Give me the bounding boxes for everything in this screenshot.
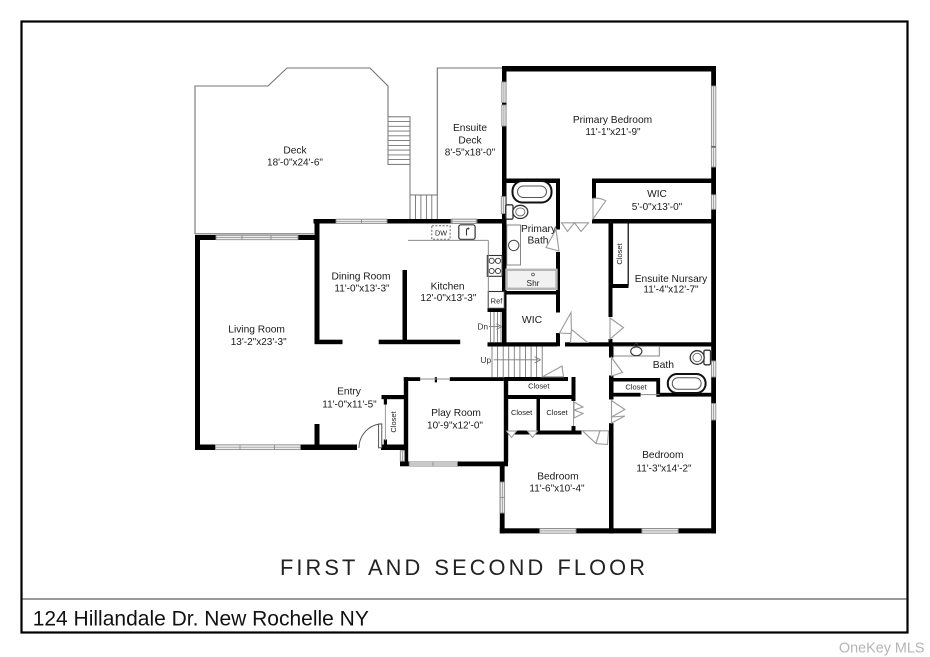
svg-text:124 Hillandale Dr. New Rochell: 124 Hillandale Dr. New Rochelle NY [33, 608, 369, 631]
svg-text:Dn: Dn [478, 323, 489, 332]
svg-text:Closet: Closet [528, 382, 550, 391]
svg-text:11'-4"x12'-7": 11'-4"x12'-7" [643, 285, 699, 296]
svg-text:Shr: Shr [527, 278, 540, 288]
svg-text:Up: Up [481, 356, 492, 365]
svg-text:Entry: Entry [337, 387, 362, 398]
svg-text:Deck: Deck [283, 146, 307, 157]
svg-text:Bath: Bath [528, 236, 549, 247]
svg-text:11'-1"x21'-9": 11'-1"x21'-9" [585, 127, 641, 138]
svg-text:11'-3"x14'-2": 11'-3"x14'-2" [636, 464, 692, 475]
svg-text:13'-2"x23'-3": 13'-2"x23'-3" [231, 337, 287, 348]
svg-text:18'-0"x24'-6": 18'-0"x24'-6" [267, 158, 323, 169]
svg-text:Primary: Primary [521, 224, 557, 235]
svg-text:11'-6"x10'-4": 11'-6"x10'-4" [529, 484, 585, 495]
svg-text:8'-5"x18'-0": 8'-5"x18'-0" [445, 148, 496, 159]
svg-text:Play Room: Play Room [431, 408, 481, 419]
svg-text:Closet: Closet [511, 408, 533, 417]
svg-text:Closet: Closet [615, 242, 624, 264]
svg-text:OneKey MLS: OneKey MLS [839, 641, 925, 657]
svg-text:Ensuite: Ensuite [453, 123, 487, 134]
svg-text:Dining Room: Dining Room [332, 272, 391, 283]
svg-text:Ref: Ref [491, 296, 504, 305]
svg-text:WIC: WIC [522, 315, 543, 326]
svg-text:Closet: Closet [546, 408, 568, 417]
svg-text:5'-0"x13'-0": 5'-0"x13'-0" [632, 202, 683, 213]
svg-text:11'-0"x11'-5": 11'-0"x11'-5" [322, 400, 377, 411]
svg-text:Ensuite Nursary: Ensuite Nursary [635, 274, 708, 285]
svg-text:Living Room: Living Room [228, 325, 285, 336]
svg-text:Kitchen: Kitchen [431, 282, 465, 293]
svg-text:Deck: Deck [458, 136, 482, 147]
svg-text:Closet: Closet [389, 410, 398, 432]
svg-text:10'-9"x12'-0": 10'-9"x12'-0" [427, 421, 483, 432]
svg-text:WIC: WIC [647, 189, 667, 200]
svg-text:Primary Bedroom: Primary Bedroom [573, 115, 652, 126]
svg-text:FIRST AND SECOND FLOOR: FIRST AND SECOND FLOOR [280, 555, 648, 580]
svg-text:11'-0"x13'-3": 11'-0"x13'-3" [334, 284, 390, 295]
svg-text:Bedroom: Bedroom [642, 450, 683, 461]
svg-text:DW: DW [435, 229, 447, 238]
svg-text:12'-0"x13'-3": 12'-0"x13'-3" [420, 293, 476, 304]
svg-text:Closet: Closet [625, 382, 647, 391]
svg-text:Bedroom: Bedroom [537, 472, 578, 483]
svg-text:Bath: Bath [653, 360, 675, 371]
